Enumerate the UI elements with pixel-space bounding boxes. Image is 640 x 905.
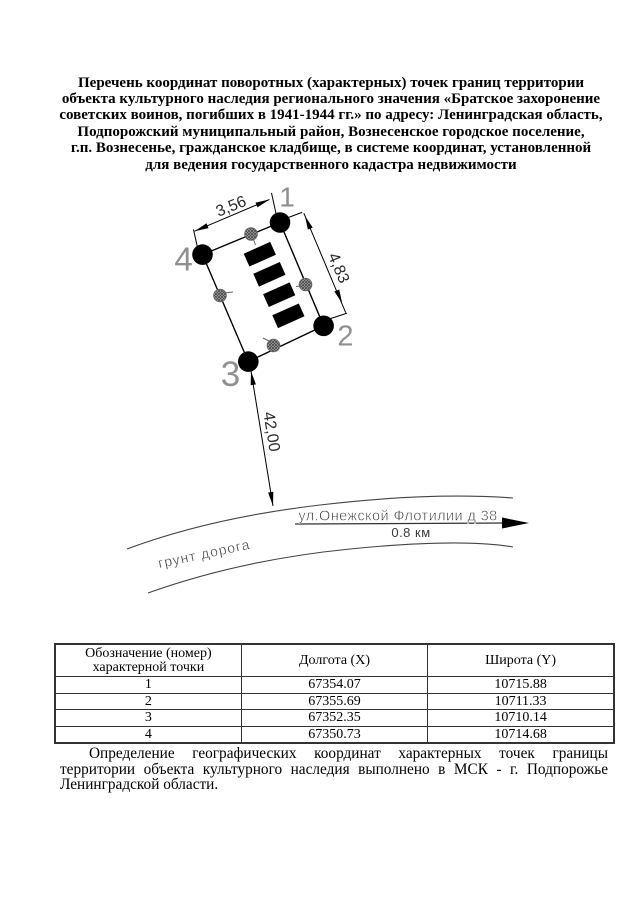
svg-text:ул.Онежской Флотилии д 38: ул.Онежской Флотилии д 38 — [298, 509, 497, 525]
svg-text:1: 1 — [279, 182, 295, 213]
svg-text:3: 3 — [221, 355, 240, 394]
svg-text:0.8 км: 0.8 км — [391, 525, 430, 540]
svg-text:4: 4 — [174, 241, 192, 278]
svg-text:3,56: 3,56 — [214, 193, 249, 220]
svg-text:4,83: 4,83 — [324, 251, 352, 286]
svg-text:2: 2 — [337, 321, 353, 353]
svg-text:грунт дорога: грунт дорога — [157, 536, 252, 571]
